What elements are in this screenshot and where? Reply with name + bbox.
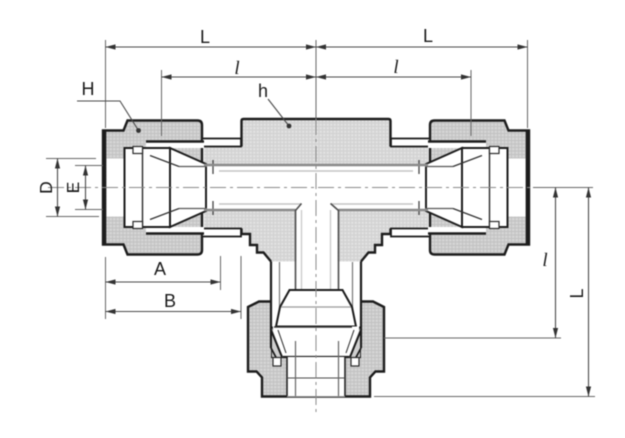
svg-text:A: A (154, 259, 166, 279)
svg-text:H: H (82, 79, 95, 99)
svg-text:E: E (63, 182, 83, 194)
svg-text:B: B (164, 291, 176, 311)
svg-text:L: L (567, 288, 587, 298)
svg-text:D: D (36, 181, 56, 194)
svg-text:L: L (423, 26, 433, 46)
svg-text:l: l (542, 250, 547, 271)
svg-text:L: L (200, 27, 210, 47)
svg-text:l: l (393, 57, 398, 78)
svg-text:l: l (234, 58, 239, 79)
svg-text:h: h (258, 81, 268, 101)
